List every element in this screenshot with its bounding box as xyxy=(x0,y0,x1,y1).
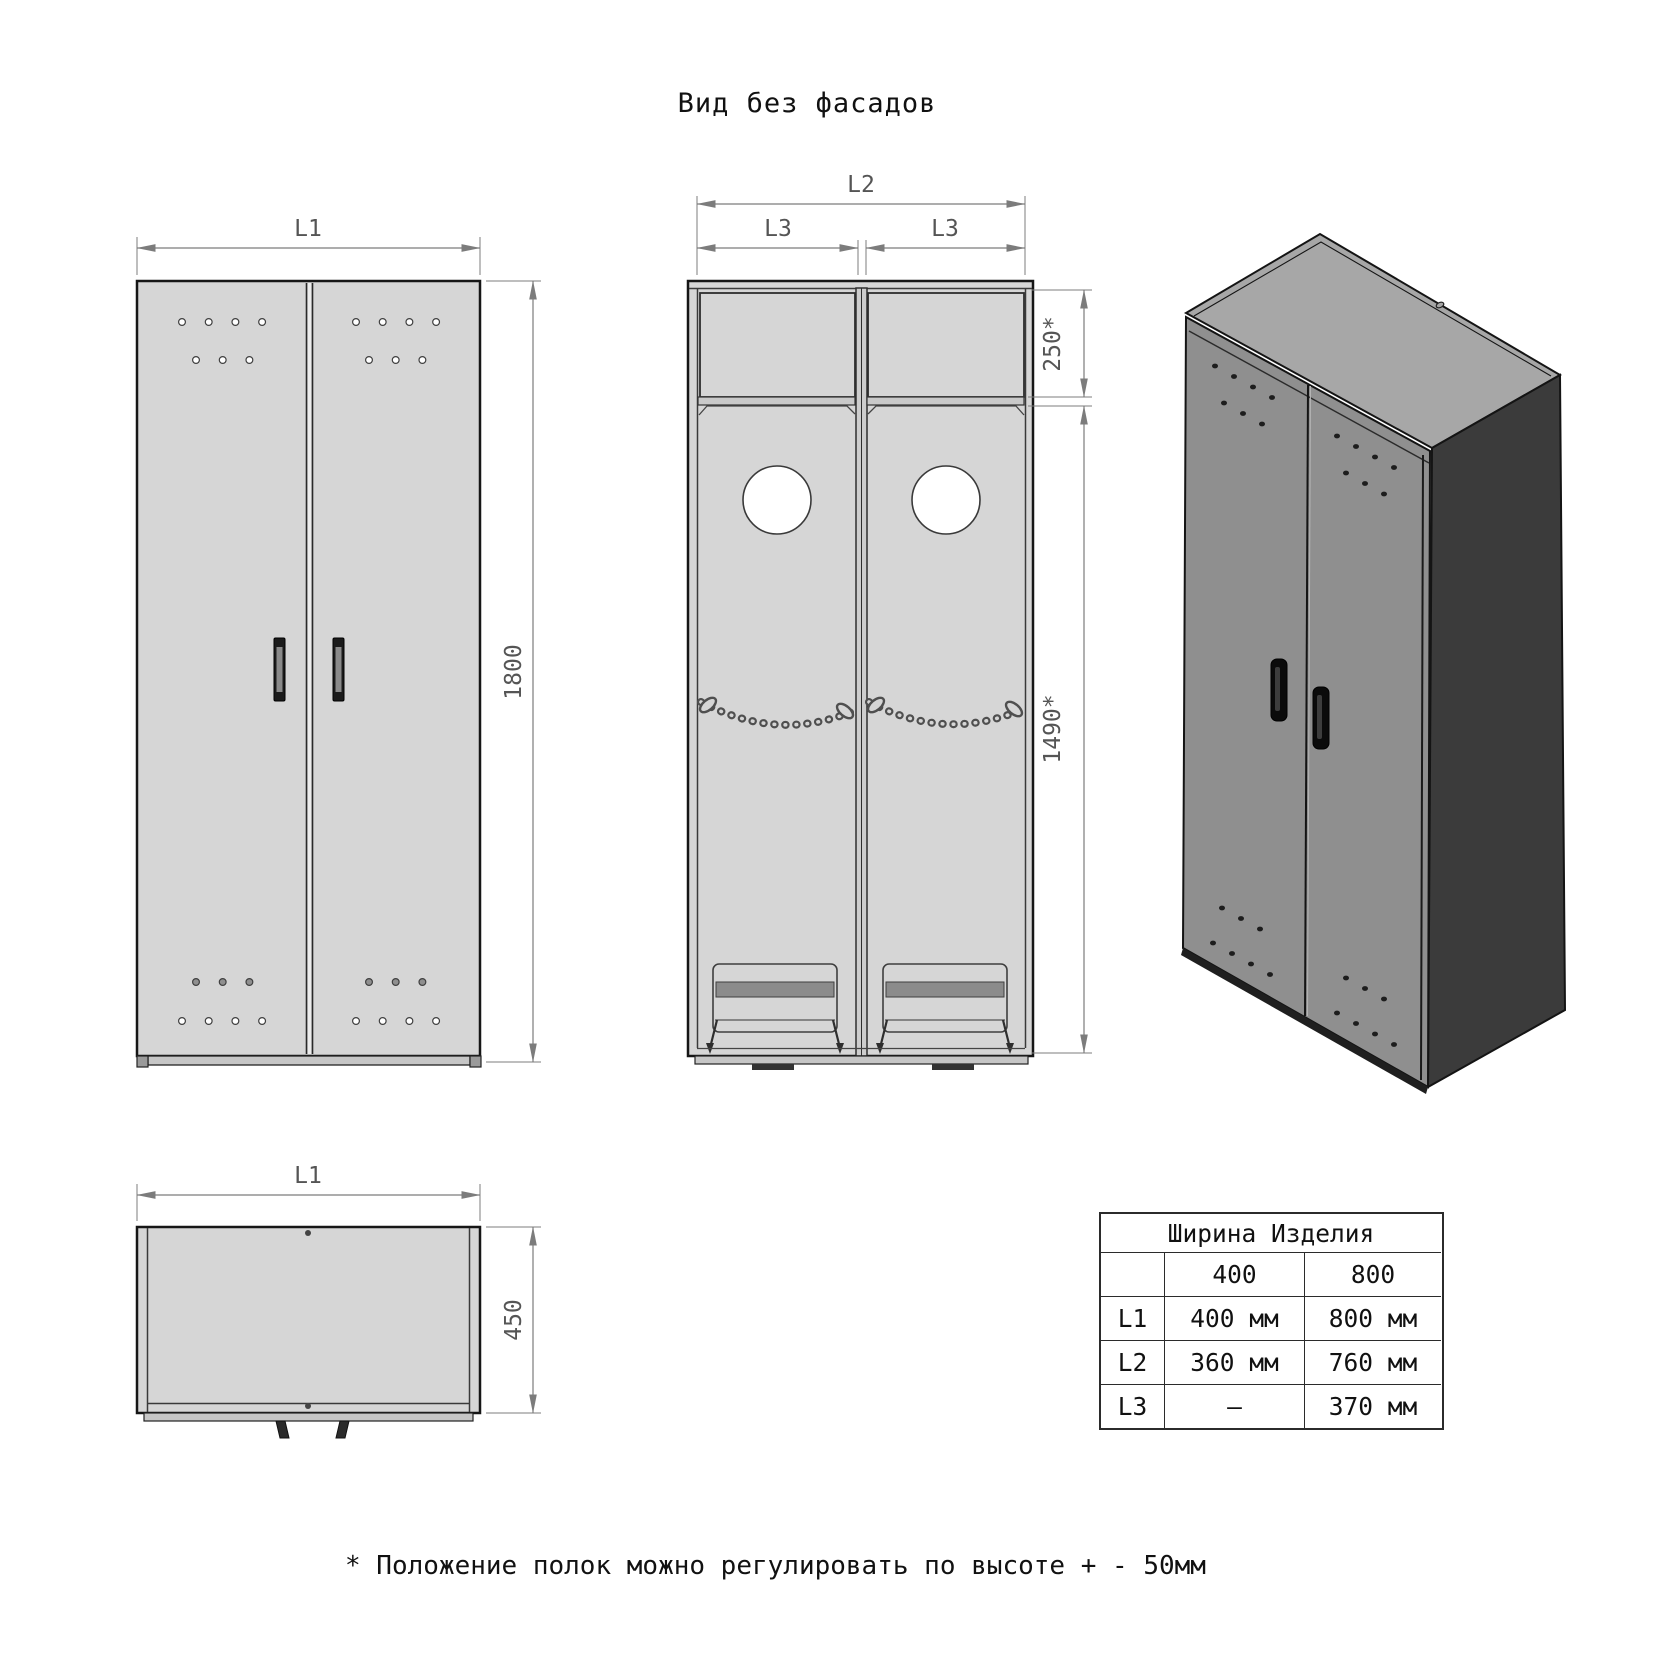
perforation-hole xyxy=(1353,444,1359,449)
isometric-view xyxy=(1181,234,1565,1094)
perforation-hole xyxy=(1267,972,1273,977)
left-door-handle xyxy=(274,638,285,701)
dim-label-front-width: L1 xyxy=(294,216,322,242)
L3-value-400: – xyxy=(1164,1384,1304,1428)
perforation-hole xyxy=(419,357,426,364)
perforation-hole xyxy=(353,1018,360,1025)
perforation-hole xyxy=(1362,986,1368,991)
right-door-handle xyxy=(333,638,344,701)
perforation-hole xyxy=(1334,1011,1340,1016)
perforation-hole xyxy=(379,1018,386,1025)
front-view: L1 1800 xyxy=(137,216,541,1067)
perforation-hole xyxy=(406,319,413,326)
dim-label-depth: 450 xyxy=(501,1299,527,1341)
front-base-strip xyxy=(148,1056,470,1065)
perforation-hole xyxy=(406,1018,413,1025)
perforation-hole xyxy=(1343,976,1349,981)
perforation-hole xyxy=(1240,411,1246,416)
size-table: Ширина Изделия 400 800 L1 400 мм 800 мм … xyxy=(1099,1212,1444,1430)
perforation-hole xyxy=(259,1018,266,1025)
top-view-screw-front xyxy=(305,1403,311,1409)
shelf-right xyxy=(867,397,1024,405)
perforation-hole xyxy=(1231,374,1237,379)
drawing-sheet: Вид без фасадов xyxy=(0,0,1680,1680)
vent-hole-right xyxy=(912,466,980,534)
perforation-hole xyxy=(179,319,186,326)
perforation-hole xyxy=(366,979,373,986)
perforation-hole xyxy=(193,979,200,986)
perforation-hole xyxy=(1391,1042,1397,1047)
top-view-left-handle xyxy=(276,1421,289,1438)
perforation-hole xyxy=(1353,1021,1359,1026)
footnote: * Положение полок можно регулировать по … xyxy=(345,1551,1206,1581)
iso-right-handle xyxy=(1313,687,1329,749)
row-label-L1: L1 xyxy=(1101,1296,1164,1340)
shelf-left xyxy=(698,397,855,405)
perforation-hole xyxy=(179,1018,186,1025)
size-table-col-400: 400 xyxy=(1164,1252,1304,1296)
top-view-body xyxy=(137,1227,480,1413)
row-label-L2: L2 xyxy=(1101,1340,1164,1384)
front-base-right-foot xyxy=(470,1056,481,1067)
perforation-hole xyxy=(1372,1032,1378,1037)
perforation-hole xyxy=(1381,997,1387,1002)
top-view: L1 450 xyxy=(137,1163,541,1438)
front-base-left-foot xyxy=(137,1056,148,1067)
dim-label-front-height: 1800 xyxy=(501,644,527,699)
top-view-screw-back xyxy=(305,1230,311,1236)
L1-value-400: 400 мм xyxy=(1164,1296,1304,1340)
perforation-hole xyxy=(219,979,226,986)
top-view-front-strip xyxy=(144,1413,473,1421)
perforation-hole xyxy=(219,357,226,364)
top-view-right-handle xyxy=(336,1421,349,1438)
perforation-hole xyxy=(392,979,399,986)
perforation-hole xyxy=(1257,927,1263,932)
L2-value-800: 760 мм xyxy=(1304,1340,1441,1384)
iso-left-handle xyxy=(1271,659,1287,721)
perforation-hole xyxy=(1210,941,1216,946)
iso-side-face xyxy=(1428,375,1565,1087)
perforation-hole xyxy=(419,979,426,986)
perforation-hole xyxy=(1238,916,1244,921)
carcass-base-strip xyxy=(695,1056,1028,1064)
size-table-col-800: 800 xyxy=(1304,1252,1441,1296)
L3-value-800: 370 мм xyxy=(1304,1384,1441,1428)
perforation-hole xyxy=(366,357,373,364)
perforation-hole xyxy=(232,319,239,326)
dim-label-top-width: L1 xyxy=(294,1163,322,1189)
perforation-hole xyxy=(1362,481,1368,486)
perforation-hole xyxy=(1381,492,1387,497)
dim-label-carcass-width: L2 xyxy=(847,172,875,198)
dim-label-bay-right: L3 xyxy=(931,216,959,242)
carcass-foot-left xyxy=(752,1064,794,1070)
row-label-L3: L3 xyxy=(1101,1384,1164,1428)
L2-value-400: 360 мм xyxy=(1164,1340,1304,1384)
size-table-corner-cell xyxy=(1101,1252,1164,1296)
perforation-hole xyxy=(1219,906,1225,911)
dim-label-top-section: 250* xyxy=(1040,316,1066,371)
perforation-hole xyxy=(1221,401,1227,406)
perforation-hole xyxy=(392,357,399,364)
carcass-foot-right xyxy=(932,1064,974,1070)
carcass-view: L2 L3 L3 250* 1490* xyxy=(688,172,1092,1070)
perforation-hole xyxy=(205,1018,212,1025)
perforation-hole xyxy=(1250,385,1256,390)
perforation-hole xyxy=(1212,364,1218,369)
perforation-hole xyxy=(1259,422,1265,427)
perforation-hole xyxy=(232,1018,239,1025)
perforation-hole xyxy=(433,1018,440,1025)
perforation-hole xyxy=(433,319,440,326)
perforation-hole xyxy=(1334,434,1340,439)
perforation-hole xyxy=(1248,962,1254,967)
size-table-header: Ширина Изделия xyxy=(1101,1214,1441,1252)
perforation-hole xyxy=(379,319,386,326)
perforation-hole xyxy=(246,979,253,986)
perforation-hole xyxy=(246,357,253,364)
perforation-hole xyxy=(1229,951,1235,956)
perforation-hole xyxy=(205,319,212,326)
perforation-hole xyxy=(1391,465,1397,470)
perforation-hole xyxy=(259,319,266,326)
vent-hole-left xyxy=(743,466,811,534)
perforation-hole xyxy=(1372,455,1378,460)
dim-label-bay-left: L3 xyxy=(764,216,792,242)
perforation-hole xyxy=(1269,395,1275,400)
perforation-hole xyxy=(353,319,360,326)
perforation-hole xyxy=(1343,471,1349,476)
perforation-hole xyxy=(193,357,200,364)
dim-label-main-section: 1490* xyxy=(1040,694,1066,763)
L1-value-800: 800 мм xyxy=(1304,1296,1441,1340)
